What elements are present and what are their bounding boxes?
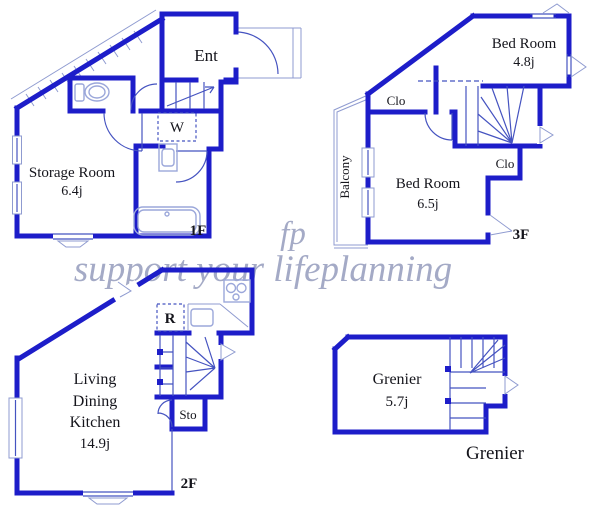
floor-plan-grenier: Grenier 5.7j Grenier: [335, 337, 525, 464]
floorplan-canvas: fp support your lifeplanning: [0, 0, 600, 508]
floor-plan-1f: Ent W Storage Room 6.4j 1F: [11, 10, 301, 247]
1f-door-arcs: [104, 84, 207, 182]
kitchen-counter: [188, 304, 248, 331]
room-label-closet-upper: Clo: [387, 93, 406, 108]
1f-stairs: [167, 82, 214, 109]
room-label-ldk-line1: Living: [74, 371, 117, 388]
room-area-bedroom-large: 6.5j: [417, 197, 438, 212]
floor-label-2f: 2F: [181, 476, 198, 492]
1f-porch: [236, 28, 301, 78]
room-label-balcony: Balcony: [337, 155, 352, 199]
caption-grenier: Grenier: [466, 443, 525, 464]
floor-label-3f: 3F: [513, 227, 530, 243]
room-label-closet-lower: Clo: [496, 156, 515, 171]
toilet-icon: [75, 83, 109, 101]
floor-label-1f: 1F: [190, 223, 207, 239]
room-label-bedroom-small: Bed Room: [492, 36, 557, 52]
2f-walls: [17, 270, 252, 493]
watermark-logo: fp: [280, 216, 306, 252]
room-label-storage-room: Storage Room: [29, 165, 116, 181]
watermark: fp support your lifeplanning: [74, 216, 452, 290]
room-label-bedroom-large: Bed Room: [396, 176, 461, 192]
floor-plan-2f: Living Dining Kitchen 14.9j R Sto 2F: [9, 270, 252, 504]
room-label-sto: Sto: [179, 407, 196, 422]
room-label-entrance: Ent: [194, 46, 218, 65]
kitchen-sink-icon: [191, 309, 213, 326]
floorplan-sheet: fp support your lifeplanning: [0, 0, 600, 508]
room-area-ldk: 14.9j: [80, 436, 110, 452]
room-label-washer: W: [170, 120, 185, 136]
room-label-grenier: Grenier: [373, 371, 423, 388]
room-label-ldk-line2: Dining: [73, 393, 117, 410]
room-area-storage-room: 6.4j: [61, 184, 82, 199]
room-label-refrigerator: R: [165, 311, 176, 327]
3f-door-arcs: [425, 113, 452, 140]
room-area-bedroom-small: 4.8j: [513, 55, 534, 70]
room-area-grenier: 5.7j: [386, 394, 409, 410]
floor-plan-3f: Bed Room 4.8j Clo Clo Bed Room 6.5j Balc…: [334, 4, 586, 248]
room-label-ldk-line3: Kitchen: [70, 414, 121, 431]
